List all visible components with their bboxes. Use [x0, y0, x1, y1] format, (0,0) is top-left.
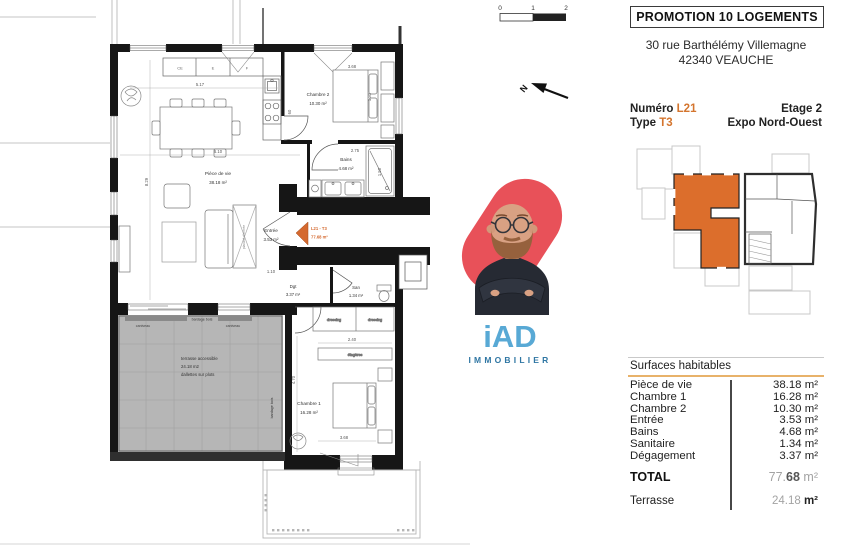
- svg-text:2: 2: [564, 5, 568, 12]
- iad-tagline: IMMOBILIER: [451, 355, 569, 365]
- caniveau-label: caniveau: [226, 324, 240, 328]
- armchair: [164, 184, 190, 208]
- svg-text:60: 60: [287, 109, 292, 114]
- dressing: dressing dressing étagères: [313, 307, 394, 360]
- svg-text:terrasse accessible: terrasse accessible: [181, 356, 218, 361]
- room-label: Chambre 2: [307, 92, 330, 97]
- terrace: caniveau caniveau bardage bois bardage b…: [118, 315, 283, 452]
- svg-text:0: 0: [498, 5, 502, 12]
- room-area: 3.37 m²: [286, 292, 301, 297]
- info-panel: PROMOTION 10 LOGEMENTS 30 rue Barthélémy…: [620, 0, 860, 550]
- room-area: 4.68 m²: [339, 166, 354, 171]
- caniveau-strip: [125, 316, 187, 321]
- unit-tag-area: 77.68 m²: [311, 235, 328, 240]
- room-area: 16.28 m²: [300, 410, 318, 415]
- unit-type: Type T3: [630, 117, 696, 131]
- dressing-label: dressing: [327, 318, 341, 322]
- rug: [162, 222, 196, 262]
- unit-type-value: T3: [659, 117, 672, 129]
- svg-text:4.70: 4.70: [291, 375, 296, 384]
- bardage-bois-label: bardage bois: [270, 397, 274, 418]
- svg-text:2.75: 2.75: [351, 148, 360, 153]
- wc-bowl: [379, 291, 389, 302]
- svg-text:3.68: 3.68: [340, 435, 349, 440]
- address: 30 rue Barthélémy Villemagne 42340 VEAUC…: [620, 38, 832, 68]
- svg-text:3.68: 3.68: [348, 64, 357, 69]
- kitchen-unit-label: F: [246, 66, 249, 71]
- agency-badge: iAD IMMOBILIER: [451, 175, 569, 365]
- washing-machine: [309, 180, 321, 197]
- scale-bar: 0 1 2: [498, 5, 568, 21]
- chambre2-furniture: [333, 62, 394, 138]
- kitchen-unit-label: CE: [177, 66, 183, 71]
- room-area: 3.53 m²: [264, 237, 279, 242]
- entry-arrow-icon: [296, 222, 308, 245]
- unit-number-value: L21: [677, 103, 697, 115]
- property-sheet: caniveau caniveau bardage bois bardage b…: [0, 0, 860, 550]
- building-key-plan: [632, 144, 832, 354]
- adjacent-unit: [745, 174, 816, 264]
- svg-text:1.50: 1.50: [377, 167, 382, 176]
- tv-unit: [119, 226, 130, 272]
- sofa: [205, 210, 233, 268]
- plant: [290, 433, 306, 449]
- dressing-label: dressing: [368, 318, 382, 322]
- room-area: 38.18 m²: [209, 180, 227, 185]
- svg-text:8.29: 8.29: [144, 177, 149, 186]
- caniveau-strip: [218, 316, 252, 321]
- bardage-bois-label: bardage bois: [192, 318, 213, 322]
- wc-tank: [377, 285, 391, 291]
- room-label: Chambre 1: [297, 401, 321, 407]
- room-label: Dgt: [290, 284, 298, 289]
- dining-table: [160, 107, 232, 149]
- svg-text:1.80: 1.80: [367, 92, 372, 101]
- entry-closet: placard d'entrée: [233, 205, 256, 268]
- svg-text:6.10: 6.10: [214, 149, 223, 154]
- room-area: 1.34 m²: [349, 293, 364, 298]
- svg-text:1: 1: [531, 5, 535, 12]
- caniveau-label: caniveau: [136, 324, 150, 328]
- table-top-rule: [628, 357, 824, 358]
- north-label: N: [518, 83, 530, 94]
- kitchen-unit-label: E: [212, 66, 215, 71]
- unit-exposure: Expo Nord-Ouest: [727, 117, 822, 131]
- living-furniture: placard d'entrée: [119, 86, 256, 272]
- room-area: 10.30 m²: [309, 101, 327, 106]
- surfaces-underline: [628, 375, 824, 377]
- total-row: TOTAL 77.68 m²: [630, 470, 818, 484]
- promotion-title: PROMOTION 10 LOGEMENTS: [630, 6, 824, 28]
- room-label: Pièce de vie: [205, 171, 231, 177]
- north-arrow-icon: N: [518, 83, 568, 98]
- unit-tag: L21 - T3: [311, 226, 327, 231]
- svg-text:1.10: 1.10: [267, 269, 276, 274]
- room-label: San: [352, 285, 360, 290]
- address-line1: 30 rue Barthélémy Villemagne: [620, 38, 832, 53]
- agent-photo: [451, 175, 569, 315]
- table-row: Dégagement 3.37 m²: [630, 451, 818, 463]
- shelves-label: étagères: [348, 353, 363, 357]
- lower-balcony: [263, 461, 420, 538]
- unit-number: Numéro L21: [630, 103, 696, 117]
- placard-label: placard d'entrée: [242, 225, 246, 249]
- iad-logo: iAD: [451, 322, 569, 352]
- room-label: Entrée: [264, 228, 278, 233]
- surfaces-table: Pièce de vie 38.18 m² Chambre 1 16.28 m²…: [630, 380, 818, 463]
- surfaces-title: Surfaces habitables: [630, 360, 731, 372]
- unit-floor: Etage 2: [727, 103, 822, 117]
- room-label: Bains: [340, 157, 352, 162]
- unit-info: Numéro L21 Type T3 Etage 2 Expo Nord-Oue…: [630, 103, 822, 130]
- address-line2: 42340 VEAUCHE: [620, 53, 832, 68]
- svg-text:24.18 m2: 24.18 m2: [181, 364, 200, 369]
- svg-text:dallettes sur plots: dallettes sur plots: [181, 372, 214, 377]
- svg-text:5.17: 5.17: [196, 82, 205, 87]
- terrace-row: Terrasse 24.18 m²: [630, 495, 818, 507]
- entry-marker: L21 - T3 77.68 m²: [296, 222, 328, 245]
- svg-text:2.40: 2.40: [348, 337, 357, 342]
